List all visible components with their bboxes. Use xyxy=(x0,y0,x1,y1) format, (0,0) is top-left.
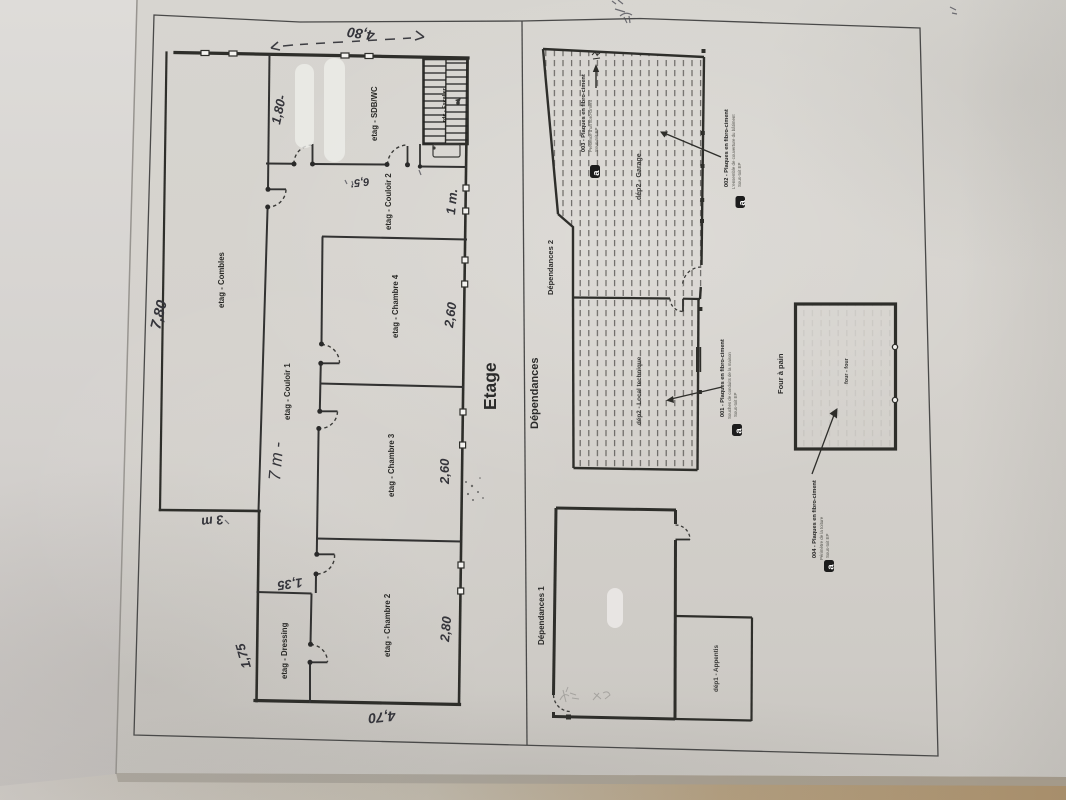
svg-text:004 - Plaques en fibro-ciment: 004 - Plaques en fibro-ciment xyxy=(812,480,818,558)
svg-text:etag - Couloir 2: etag - Couloir 2 xyxy=(384,173,393,230)
svg-text:a: a xyxy=(826,564,837,570)
svg-text:etag - Combles: etag - Combles xyxy=(217,251,226,308)
svg-text:etag - Dressing: etag - Dressing xyxy=(280,622,289,679)
svg-text:Dépendances 1: Dépendances 1 xyxy=(537,586,546,645)
svg-text:dép2 - Local technique: dép2 - Local technique xyxy=(636,356,643,425)
svg-text:001 - Plaques en fibro-ciment: 001 - Plaques en fibro-ciment xyxy=(720,339,726,417)
svg-text:7 m -: 7 m - xyxy=(265,441,287,482)
svg-text:Four à pain: Four à pain xyxy=(776,353,785,394)
svg-text:Périmètre de la toiture: Périmètre de la toiture xyxy=(819,516,824,560)
svg-text:003 - Plaques en fibro-ciment: 003 - Plaques en fibro-ciment xyxy=(581,74,587,152)
svg-text:Sous-toit EP: Sous-toit EP xyxy=(737,163,742,187)
svg-text:Dépendances 2: Dépendances 2 xyxy=(546,240,555,295)
svg-text:a: a xyxy=(734,428,745,434)
svg-text:Sous-toit EP: Sous-toit EP xyxy=(825,534,830,558)
svg-text:etag - Chambre 2: etag - Chambre 2 xyxy=(383,593,392,657)
svg-text:four - four: four - four xyxy=(844,357,850,384)
svg-text:2,80: 2,80 xyxy=(437,615,454,643)
svg-text:etag - Chambre 3: etag - Chambre 3 xyxy=(387,433,396,497)
svg-text:Etage: Etage xyxy=(480,362,500,410)
svg-text:dép1 - Appentis: dép1 - Appentis xyxy=(713,645,720,692)
svg-text:1 m.: 1 m. xyxy=(443,188,460,215)
svg-text:Souches de conduits de la mais: Souches de conduits de la maison xyxy=(727,352,732,419)
svg-text:Dépendances: Dépendances xyxy=(529,357,541,429)
svg-text:Présence d'un fibro-ciment: Présence d'un fibro-ciment xyxy=(588,99,593,152)
svg-text:3 m: 3 m xyxy=(200,512,225,530)
svg-text:etag - Chambre 4: etag - Chambre 4 xyxy=(391,274,400,338)
svg-text:Sous-toit EP: Sous-toit EP xyxy=(733,393,738,417)
svg-text:etag - Couloir 1: etag - Couloir 1 xyxy=(283,363,292,420)
svg-text:dép2 - Garage: dép2 - Garage xyxy=(636,153,643,200)
svg-text:rdc - Escalier: rdc - Escalier xyxy=(442,87,448,122)
svg-text:4,70: 4,70 xyxy=(367,708,397,727)
svg-text:a: a xyxy=(737,200,748,206)
svg-text:etag - SDB/WC: etag - SDB/WC xyxy=(370,86,379,141)
svg-text:002 - Plaques en fibro-ciment: 002 - Plaques en fibro-ciment xyxy=(724,109,730,187)
svg-text:L'ensemble de couverture du bâ: L'ensemble de couverture du bâtiment xyxy=(731,114,736,189)
svg-text:Sous-toit EP: Sous-toit EP xyxy=(594,128,599,152)
svg-text:2,60: 2,60 xyxy=(437,458,452,485)
svg-text:a: a xyxy=(591,170,602,176)
